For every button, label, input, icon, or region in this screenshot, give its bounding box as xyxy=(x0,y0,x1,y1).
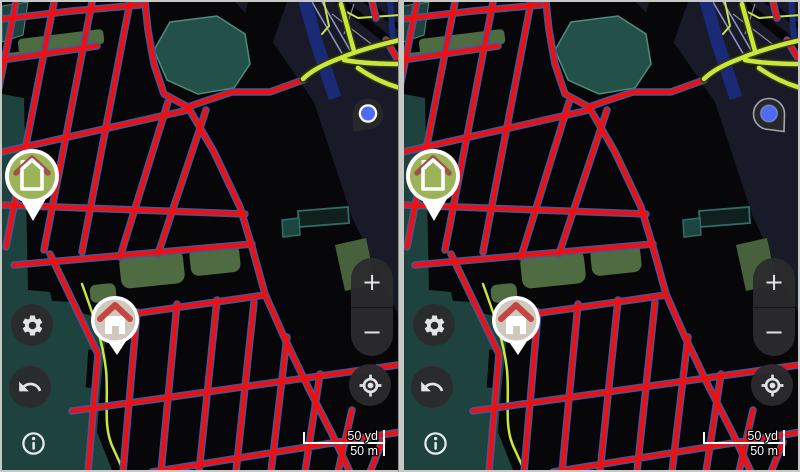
info-button[interactable] xyxy=(421,429,449,457)
my-location-icon xyxy=(760,373,785,398)
map-canvas[interactable] xyxy=(404,2,798,470)
undo-arrow-icon xyxy=(419,374,445,400)
undo-button[interactable] xyxy=(411,366,453,408)
scale-metric-label: 50 m xyxy=(750,444,778,458)
info-icon xyxy=(20,430,47,457)
gear-icon xyxy=(422,313,447,338)
map-canvas[interactable] xyxy=(2,2,398,470)
zoom-out-button[interactable]: − xyxy=(351,307,393,357)
scale-metric-label: 50 m xyxy=(350,444,378,458)
my-location-button[interactable] xyxy=(751,364,793,406)
scale-imperial-label: 50 yd xyxy=(747,429,778,443)
info-icon xyxy=(422,430,449,457)
my-location-button[interactable] xyxy=(349,364,391,406)
undo-arrow-icon xyxy=(17,374,43,400)
settings-button[interactable] xyxy=(11,304,53,346)
settings-button[interactable] xyxy=(413,304,455,346)
map-scale-bar: 50 yd 50 m xyxy=(700,427,788,459)
scale-imperial-label: 50 yd xyxy=(347,429,378,443)
undo-button[interactable] xyxy=(9,366,51,408)
info-button[interactable] xyxy=(19,429,47,457)
gear-icon xyxy=(20,313,45,338)
zoom-control: + − xyxy=(351,258,393,356)
map-scale-bar: 50 yd 50 m xyxy=(300,427,388,459)
zoom-in-button[interactable]: + xyxy=(753,258,795,307)
my-location-icon xyxy=(358,373,383,398)
zoom-in-button[interactable]: + xyxy=(351,258,393,307)
map-panel-left: + − 50 yd 50 m xyxy=(2,2,398,470)
map-panel-right: + − 50 yd 50 m xyxy=(404,2,798,470)
zoom-out-button[interactable]: − xyxy=(753,307,795,357)
zoom-control: + − xyxy=(753,258,795,356)
